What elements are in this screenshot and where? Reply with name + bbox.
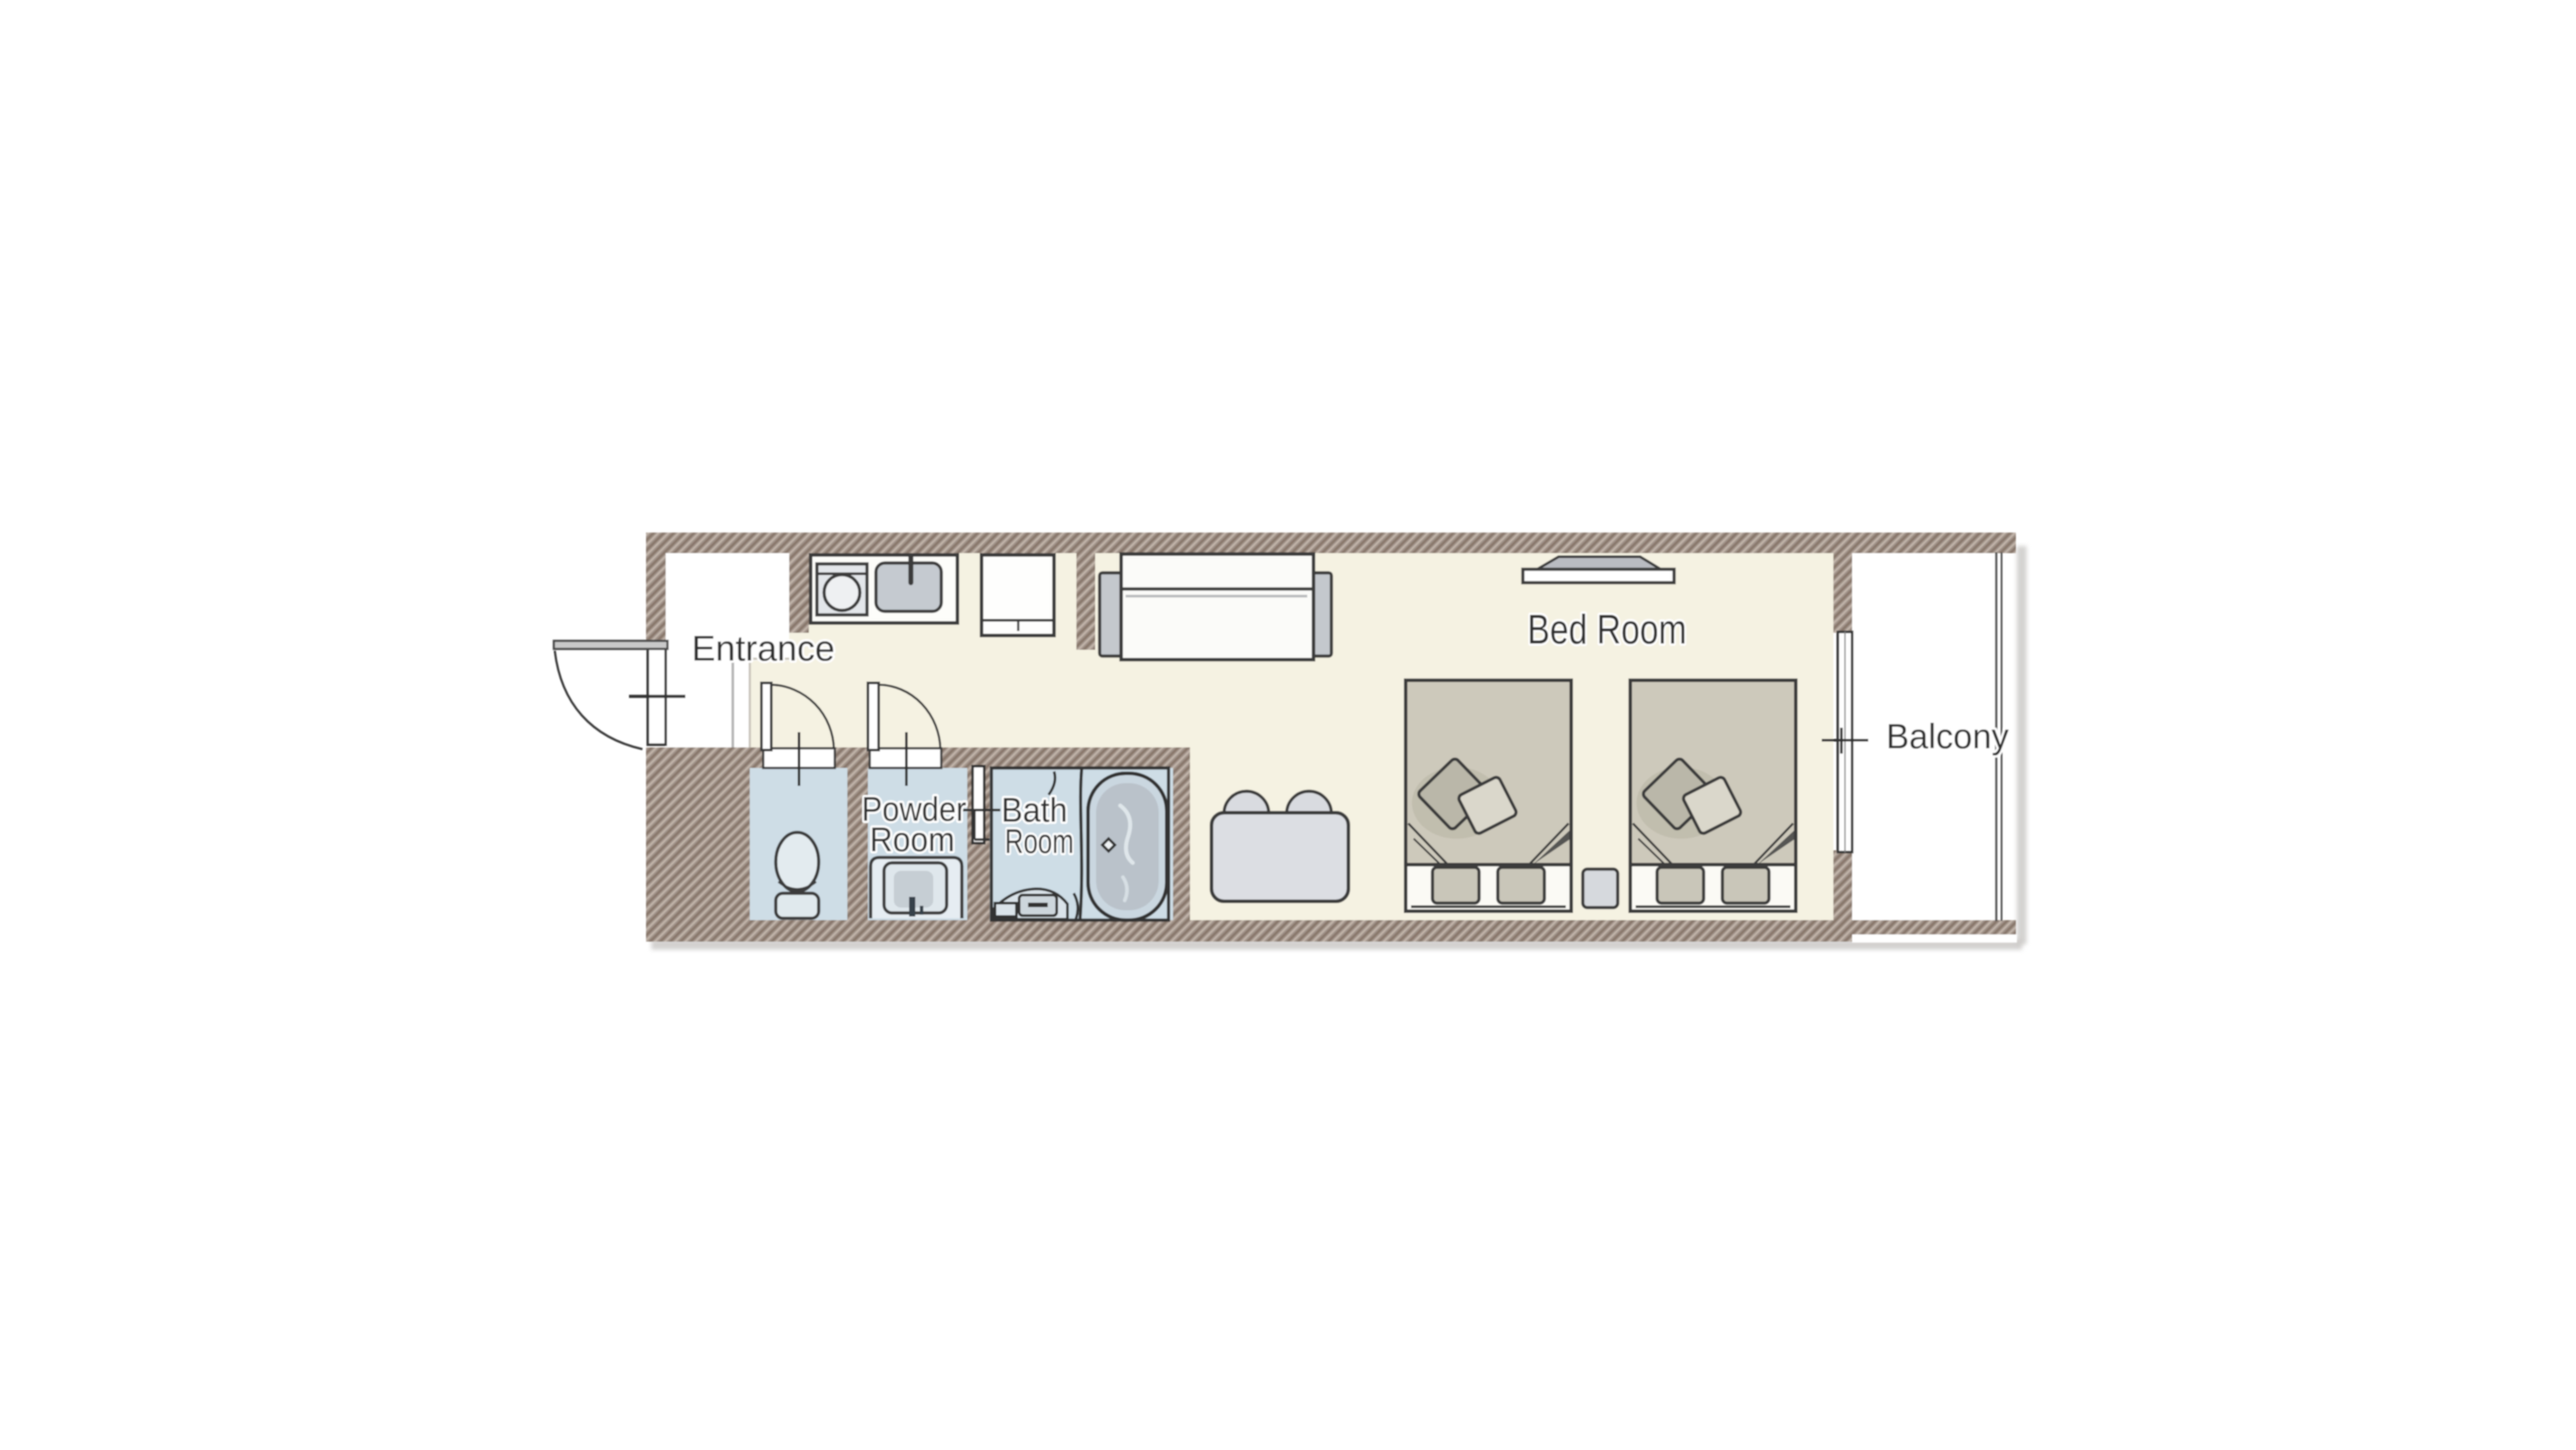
- svg-text:Entrance: Entrance: [692, 629, 835, 669]
- svg-text:Room: Room: [870, 822, 955, 859]
- svg-text:Room: Room: [1005, 823, 1074, 861]
- svg-text:Bed Room: Bed Room: [1527, 606, 1687, 652]
- svg-text:Balcony: Balcony: [1886, 718, 2009, 756]
